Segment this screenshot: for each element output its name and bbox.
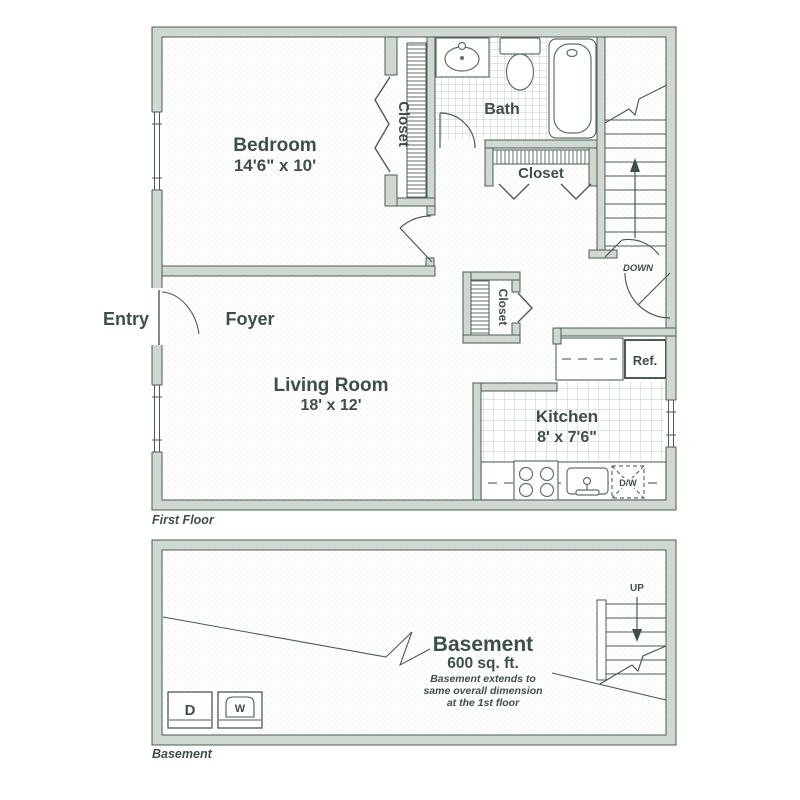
living-room-dimensions: 18' x 12': [301, 397, 362, 414]
bedroom-closet-jamb-top: [385, 37, 397, 75]
foyer-closet-label: Closet: [496, 289, 510, 326]
refrigerator-label: Ref.: [633, 353, 658, 368]
bedroom-label: Bedroom: [233, 135, 316, 156]
bedroom-closet-south-wall: [397, 198, 435, 206]
burner: [541, 484, 554, 497]
kitchen-dimensions: 8' x 7'6": [537, 429, 597, 446]
floor-plan-page: Bedroom 14'6" x 10' Living Room 18' x 12…: [0, 0, 800, 800]
bedroom-window: [150, 112, 164, 190]
burner: [520, 484, 533, 497]
bath-south-wall: [485, 140, 597, 148]
foyer-closet-jamb-top: [512, 280, 520, 292]
stairwell-door-jamb: [589, 250, 617, 258]
bedroom-closet-jamb-bottom: [385, 175, 397, 206]
basement-caption: Basement: [152, 747, 213, 761]
kitchen-north-wall: [553, 328, 676, 336]
kitchen-door-jamb: [553, 328, 561, 344]
basement-plan: Basement 600 sq. ft. Basement extends to…: [152, 540, 676, 761]
living-room-label: Living Room: [273, 375, 388, 396]
bedroom-dimensions: 14'6" x 10': [234, 156, 316, 175]
floor-plan-drawing: Bedroom 14'6" x 10' Living Room 18' x 12…: [0, 0, 800, 800]
toilet-bowl: [507, 54, 534, 90]
dishwasher-label: D/W: [619, 478, 637, 488]
basement-note-line2: same overall dimension: [423, 685, 542, 697]
bath-sink-drain: [461, 57, 464, 60]
basement-title: Basement: [433, 633, 533, 656]
foyer-closet-south-wall: [463, 335, 520, 343]
stairwell-west-wall: [597, 37, 605, 250]
kitchen-west-wall: [473, 383, 481, 500]
stairs-down-label: DOWN: [623, 263, 654, 274]
living-room-window: [150, 385, 164, 452]
stair-stringer: [597, 600, 606, 680]
hall-closet-shelf: [493, 150, 589, 164]
stove: [514, 461, 558, 502]
bathtub-drain: [567, 50, 577, 57]
hall-closet-jamb-right: [589, 148, 597, 186]
first-floor-plan: Bedroom 14'6" x 10' Living Room 18' x 12…: [103, 27, 678, 527]
hall-closet-jamb-left: [485, 148, 493, 186]
foyer-closet-jamb-bottom: [512, 323, 520, 335]
bedroom-closet-label: Closet: [395, 101, 412, 147]
washer-label: W: [235, 703, 246, 715]
kitchen-window: [664, 400, 678, 447]
hall-closet-label: Closet: [518, 165, 564, 182]
dryer-label: D: [185, 702, 196, 719]
bath-faucet: [459, 43, 466, 50]
burner: [541, 468, 554, 481]
kitchen-label: Kitchen: [536, 407, 598, 426]
toilet-tank: [500, 38, 540, 54]
first-floor-caption: First Floor: [152, 513, 215, 527]
foyer-kitchen-wall: [473, 383, 557, 391]
foyer-closet-west-wall: [463, 272, 471, 343]
foyer-closet-north-wall: [463, 272, 520, 280]
bedroom-closet-east-wall: [427, 37, 435, 215]
basement-area: 600 sq. ft.: [447, 655, 519, 672]
foyer-closet-shelf: [471, 280, 489, 335]
bathtub-inner: [554, 44, 591, 133]
entry-label: Entry: [103, 309, 149, 329]
basement-note-line1: Basement extends to: [430, 673, 536, 685]
basement-note-line3: at the 1st floor: [447, 697, 520, 709]
foyer-label: Foyer: [225, 309, 274, 329]
kitchen-sink-base: [576, 490, 599, 495]
stairs-up-label: UP: [630, 583, 644, 594]
kitchen-faucet: [584, 478, 591, 485]
bath-label: Bath: [484, 101, 520, 118]
burner: [520, 468, 533, 481]
bedroom-foyer-wall: [162, 266, 435, 276]
